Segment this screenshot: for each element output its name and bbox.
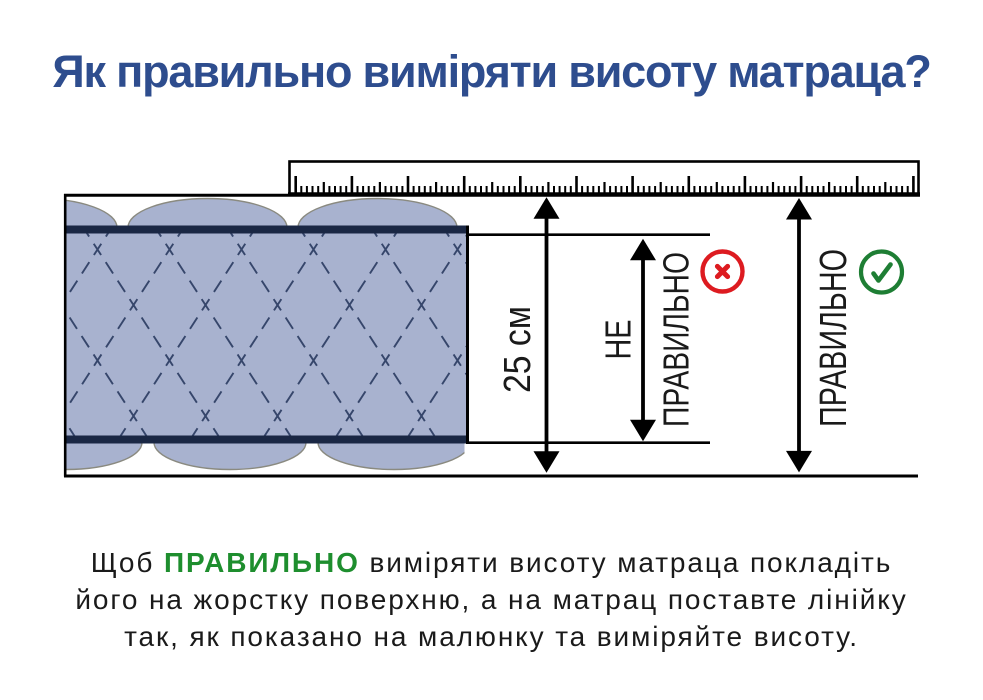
svg-text:ПРАВИЛЬНО: ПРАВИЛЬНО (813, 249, 855, 427)
svg-text:НЕ: НЕ (598, 320, 639, 360)
svg-text:ПРАВИЛЬНО: ПРАВИЛЬНО (656, 252, 697, 427)
svg-text:25 см: 25 см (497, 306, 539, 393)
